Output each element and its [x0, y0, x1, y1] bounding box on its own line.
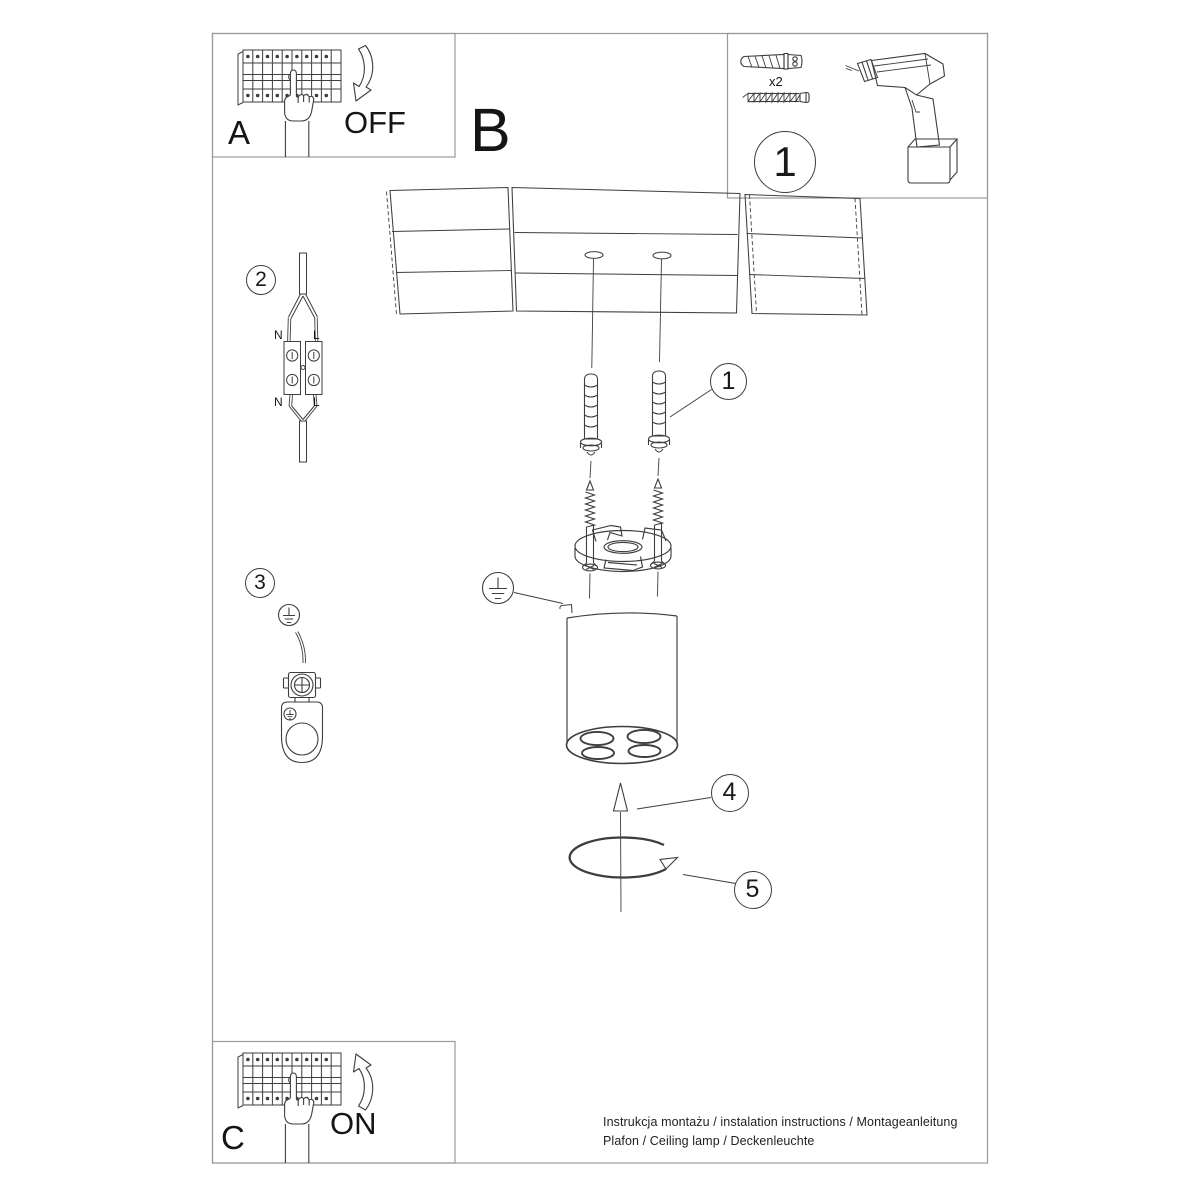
callout-line-anchor: [670, 390, 712, 418]
terminal-label-n-bottom: N: [274, 396, 283, 408]
step-badge-twist: 5: [734, 871, 772, 909]
page-frame: [213, 34, 988, 1164]
mount-hole-right: [653, 252, 671, 259]
ground-symbol-callout-icon: [483, 573, 514, 604]
hand-press-icon: [285, 1073, 314, 1163]
ground-symbol-icon: [279, 605, 300, 626]
footer-title-line: Instrukcja montażu / instalation instruc…: [603, 1115, 958, 1129]
section-b-label: B: [470, 100, 511, 161]
ground-wire-diagram: [279, 605, 323, 763]
ceiling-panels: [387, 188, 868, 316]
terminal-label-l-bottom: L: [313, 396, 320, 408]
rotation-arrow-icon: [570, 838, 678, 878]
diagram-artwork: [0, 0, 1200, 1200]
page-border: [213, 34, 988, 1164]
step-badge-anchor: 1: [710, 363, 747, 400]
terminal-label-n-top: N: [274, 329, 283, 341]
step-badge-wiring: 2: [246, 265, 276, 295]
screw-icon: [743, 93, 810, 103]
terminal-label-l-top: L: [313, 329, 320, 341]
step-badge-push: 4: [711, 774, 749, 812]
footer-product-line: Plafon / Ceiling lamp / Deckenleuchte: [603, 1134, 814, 1148]
hand-press-icon: [285, 70, 314, 160]
instruction-sheet: A OFF B x2 N L N L C ON 1 2 3 1 4 5 Inst…: [0, 0, 1200, 1200]
wire-connector-diagram: [284, 253, 322, 462]
arrow-down-icon: [354, 46, 373, 102]
drill-icon: [846, 54, 958, 184]
arrow-up-icon: [354, 1054, 373, 1110]
callout-line-twist: [683, 875, 736, 884]
step-badge-tools: 1: [754, 131, 816, 193]
lamp-openings: [581, 730, 661, 759]
lamp-body: [560, 605, 678, 764]
wall-anchor-left: [581, 374, 602, 455]
section-a-label: A: [228, 116, 250, 149]
wall-anchor-right: [649, 371, 670, 452]
step-badge-ground: 3: [245, 568, 275, 598]
ground-wire-hook: [560, 605, 572, 614]
callout-line-ground: [514, 593, 563, 604]
mount-hole-left: [585, 252, 603, 259]
breaker-off-illustration: [238, 46, 373, 161]
anchor-quantity: x2: [769, 75, 783, 88]
breaker-on-state: ON: [330, 1108, 377, 1139]
push-up-arrow-icon: [614, 783, 628, 912]
wall-plug-icon: [741, 54, 802, 70]
breaker-off-state: OFF: [344, 107, 406, 138]
mounting-screw-right: [651, 479, 666, 569]
callout-line-push: [637, 798, 711, 810]
section-c-label: C: [221, 1121, 245, 1154]
